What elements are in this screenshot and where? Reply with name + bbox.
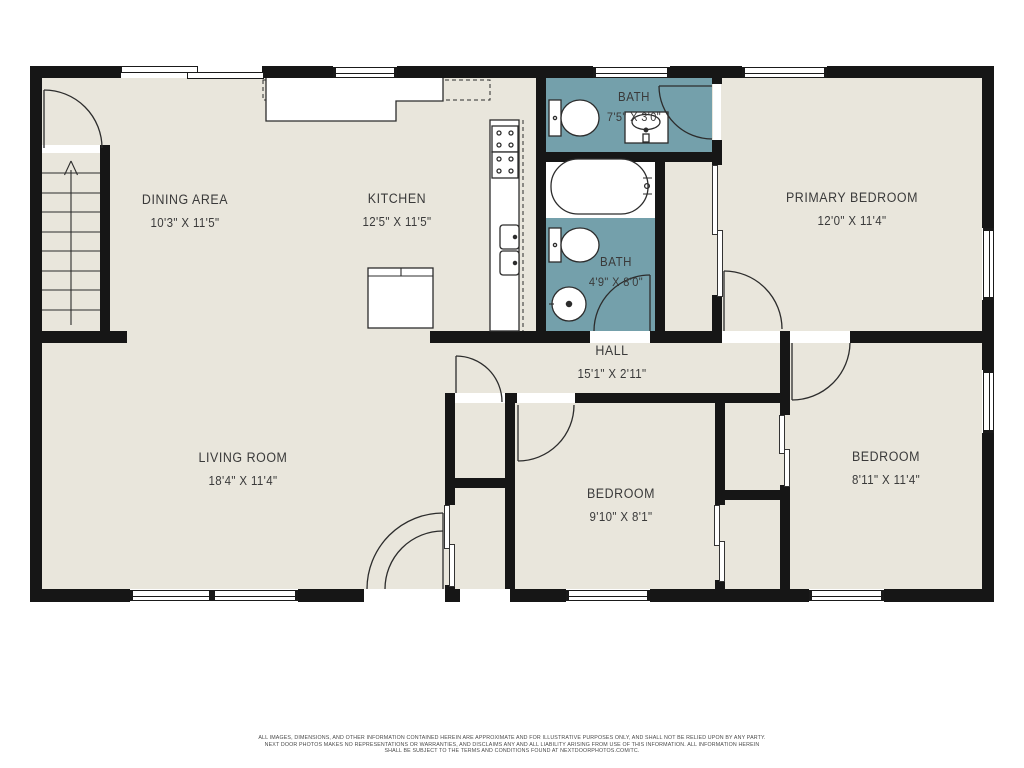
room-label-bedroom-middle: BEDROOM 9'10" X 8'1" [538, 487, 704, 524]
room-name: BEDROOM [538, 487, 704, 501]
room-label-hall: HALL 15'1" X 2'11" [529, 344, 695, 381]
entry-door [367, 513, 443, 589]
room-label-bedroom-right: BEDROOM 8'11" X 11'4" [803, 450, 969, 487]
room-name: BATH [560, 90, 707, 104]
refrigerator-icon [368, 268, 433, 328]
room-dims: 15'1" X 2'11" [529, 367, 695, 381]
room-dims: 8'11" X 11'4" [803, 473, 969, 487]
room-name: HALL [529, 344, 695, 358]
bedroom-right-door [792, 343, 850, 400]
floor-plan: DINING AREA 10'3" X 11'5" KITCHEN 12'5" … [0, 0, 1024, 768]
room-name: PRIMARY BEDROOM [760, 191, 944, 205]
room-label-bath-bottom: BATH 4'9" X 8'0" [542, 255, 689, 289]
round-sink-icon [549, 287, 586, 321]
disclaimer: ALL IMAGES, DIMENSIONS, AND OTHER INFORM… [0, 735, 1024, 755]
room-label-primary-bedroom: PRIMARY BEDROOM 12'0" X 11'4" [760, 191, 944, 228]
room-name: BEDROOM [803, 450, 969, 464]
hall-closet-door [456, 356, 502, 402]
room-dims: 4'9" X 8'0" [542, 275, 689, 289]
bathtub-icon [551, 159, 652, 214]
room-dims: 12'0" X 11'4" [760, 214, 944, 228]
room-dims: 12'5" X 11'5" [314, 215, 480, 229]
fixtures-overlay [0, 0, 1024, 768]
stairs [42, 161, 100, 325]
stove-icon [492, 126, 518, 178]
room-label-bath-top: BATH 7'5" X 3'0" [560, 90, 707, 124]
room-label-dining: DINING AREA 10'3" X 11'5" [102, 193, 268, 230]
room-label-kitchen: KITCHEN 12'5" X 11'5" [314, 192, 480, 229]
bedroom-middle-door [518, 405, 574, 461]
room-dims: 18'4" X 11'4" [160, 474, 326, 488]
primary-bedroom-door [724, 271, 782, 331]
room-name: BATH [542, 255, 689, 269]
room-name: DINING AREA [102, 193, 268, 207]
room-dims: 7'5" X 3'0" [560, 110, 707, 124]
disclaimer-line: SHALL BE SUBJECT TO THE TERMS AND CONDIT… [0, 748, 1024, 755]
room-dims: 9'10" X 8'1" [538, 510, 704, 524]
room-label-living-room: LIVING ROOM 18'4" X 11'4" [160, 451, 326, 488]
stair-door [44, 90, 102, 148]
disclaimer-line: NEXT DOOR PHOTOS MAKES NO REPRESENTATION… [0, 742, 1024, 749]
room-name: LIVING ROOM [160, 451, 326, 465]
disclaimer-line: ALL IMAGES, DIMENSIONS, AND OTHER INFORM… [0, 735, 1024, 742]
room-dims: 10'3" X 11'5" [102, 216, 268, 230]
room-name: KITCHEN [314, 192, 480, 206]
